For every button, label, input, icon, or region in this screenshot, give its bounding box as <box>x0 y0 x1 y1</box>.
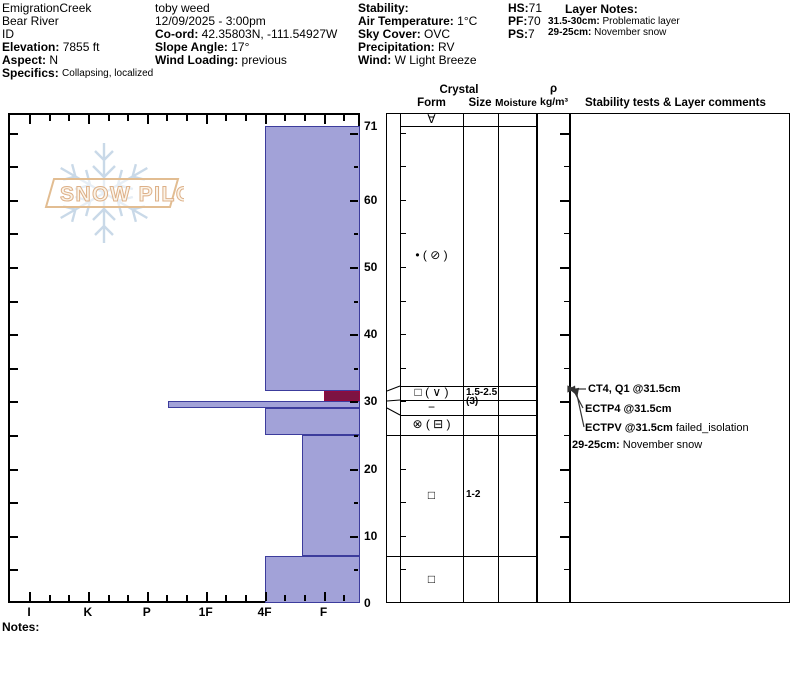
hardness-label-K: K <box>76 605 100 619</box>
snowpilot-logo: SNOW PILOT <box>24 135 184 255</box>
wind-loading: Wind Loading: previous <box>155 54 337 67</box>
depth-tick-left <box>10 334 18 336</box>
depth-tick-left <box>10 502 18 504</box>
ruler-tick <box>401 502 406 503</box>
depth-tick-right <box>350 267 358 269</box>
stability-test-2: ECTP4 @31.5cm <box>585 403 672 415</box>
form-symbol-71-31.5: • ( ⊘ ) <box>400 248 463 262</box>
hardness-tick-top <box>343 115 345 121</box>
form-symbol-31.5-30: □ ( ∨ ) <box>400 385 463 399</box>
ruler-tick <box>401 133 406 134</box>
depth-tick-right <box>354 166 358 168</box>
depth-tick-right <box>354 233 358 235</box>
notes-label: Notes: <box>2 620 39 634</box>
hardness-label-1F: 1F <box>194 605 218 619</box>
hardness-tick-top <box>127 115 129 121</box>
depth-tick-left <box>10 569 18 571</box>
density-tick <box>564 368 569 369</box>
header-col-weather: Stability: Air Temperature: 1°C Sky Cove… <box>358 2 477 67</box>
depth-tick-right <box>350 401 358 403</box>
hardness-tick-bottom <box>324 592 326 601</box>
hardness-tick-top <box>49 115 51 121</box>
stability-test-3: ECTPV @31.5cm failed_isolation <box>585 422 749 434</box>
ruler-tick <box>401 569 406 570</box>
layer-bar-29-25 <box>265 408 360 435</box>
density-tick <box>560 267 569 269</box>
form-symbol-7-0: □ <box>400 572 463 586</box>
ruler-tick <box>401 435 406 436</box>
hardness-label-I: I <box>17 605 41 619</box>
hardness-tick-bottom <box>304 595 306 601</box>
depth-tick-right <box>350 133 358 135</box>
ps-value: PS:7 <box>508 28 542 41</box>
layer-note-1: 31.5-30cm: Problematic layer <box>548 16 680 27</box>
mountain-range: Bear River <box>2 15 153 28</box>
hardness-tick-top <box>304 115 306 121</box>
depth-tick-right <box>354 502 358 504</box>
row-line-25 <box>386 435 537 436</box>
ruler-tick <box>401 166 406 167</box>
ruler-tick <box>401 536 406 537</box>
layer-note-2: 29-25cm: November snow <box>548 27 666 38</box>
header-col-observation: toby weed 12/09/2025 - 3:00pm Co-ord: 42… <box>155 2 337 67</box>
hardness-tick-bottom <box>186 595 188 601</box>
density-tick <box>560 401 569 403</box>
stability-header: Stability tests & Layer comments <box>585 97 766 109</box>
hardness-tick-bottom <box>245 595 247 601</box>
hardness-label-P: P <box>135 605 159 619</box>
depth-tick-left <box>10 166 18 168</box>
ruler-tick <box>401 267 406 268</box>
density-column-box <box>537 113 570 603</box>
density-tick <box>564 569 569 570</box>
hardness-tick-top <box>284 115 286 121</box>
hardness-tick-top <box>324 115 326 124</box>
depth-tick-left <box>10 536 18 538</box>
moisture-header: Moisture <box>491 98 541 109</box>
hardness-tick-bottom <box>166 595 168 601</box>
layer-bar-25-7 <box>302 435 360 556</box>
hardness-tick-top <box>265 115 267 124</box>
layer-comment: 29-25cm: November snow <box>572 439 702 451</box>
stability-test-suffix: failed_isolation <box>673 422 749 434</box>
density-tick <box>560 133 569 135</box>
density-tick <box>564 233 569 234</box>
ruler-tick <box>401 368 406 369</box>
depth-label-50: 50 <box>364 260 386 274</box>
hardness-tick-top <box>88 115 90 124</box>
header-col-snowpack: HS:71 PF:70 PS:7 <box>508 2 542 41</box>
ruler-tick <box>401 469 406 470</box>
density-tick <box>564 301 569 302</box>
hardness-label-4F: 4F <box>253 605 277 619</box>
form-header: Form <box>400 97 463 109</box>
form-symbol-30-29: − <box>400 400 463 414</box>
depth-tick-right <box>354 569 358 571</box>
density-tick <box>560 536 569 538</box>
hardness-tick-bottom <box>147 592 149 601</box>
density-tick <box>560 200 569 202</box>
depth-tick-right <box>350 536 358 538</box>
depth-tick-left <box>10 435 18 437</box>
depth-tick-left <box>10 401 18 403</box>
depth-tick-right <box>354 301 358 303</box>
size-moisture-divider <box>498 113 499 603</box>
row-line-29 <box>400 415 537 416</box>
hardness-tick-top <box>186 115 188 121</box>
size-value-25-7: 1-2 <box>466 489 480 500</box>
layer-comment-text: November snow <box>620 439 703 451</box>
hardness-tick-top <box>225 115 227 121</box>
density-tick <box>560 469 569 471</box>
depth-label-40: 40 <box>364 327 386 341</box>
hardness-tick-bottom <box>265 592 267 601</box>
stability-test-text: ECTPV @31.5cm <box>585 422 673 434</box>
form-symbol-29-25: ⊗ ( ⊟ ) <box>400 417 463 431</box>
specifics: Specifics: Collapsing, localized <box>2 67 153 80</box>
ruler-tick <box>401 200 406 201</box>
hardness-tick-top <box>166 115 168 121</box>
row-line-surface <box>400 126 537 127</box>
hardness-tick-bottom <box>108 595 110 601</box>
layer-bar-71-31.5 <box>265 126 360 391</box>
layer-bar-7-0 <box>265 556 360 603</box>
ruler-tick <box>401 401 406 402</box>
hardness-tick-bottom <box>29 592 31 601</box>
stability-test-1: CT4, Q1 @31.5cm <box>588 383 681 395</box>
layer-bar-30-29 <box>168 401 360 408</box>
density-header: ρ <box>537 83 570 95</box>
depth-tick-right <box>350 200 358 202</box>
hardness-tick-bottom <box>206 592 208 601</box>
row-line-7 <box>386 556 537 557</box>
crystal-table-box <box>386 113 537 603</box>
stability-box <box>570 113 790 603</box>
hardness-tick-top <box>206 115 208 124</box>
form-size-divider <box>463 113 464 603</box>
depth-label-60: 60 <box>364 193 386 207</box>
hardness-tick-bottom <box>88 592 90 601</box>
stability-test-text: CT4, Q1 @31.5cm <box>588 383 681 395</box>
depth-tick-right <box>350 334 358 336</box>
hardness-label-F: F <box>312 605 336 619</box>
density-units: kg/m³ <box>535 96 573 108</box>
depth-tick-left <box>10 267 18 269</box>
depth-tick-left <box>10 200 18 202</box>
depth-label-10: 10 <box>364 529 386 543</box>
depth-label-30: 30 <box>364 394 386 408</box>
hardness-tick-bottom <box>127 595 129 601</box>
table-depth-ruler <box>400 113 401 603</box>
depth-tick-left <box>10 368 18 370</box>
hardness-profile-chart: SNOW PILOT <box>8 113 360 603</box>
hardness-tick-bottom <box>225 595 227 601</box>
depth-tick-left <box>10 469 18 471</box>
crystal-header: Crystal <box>420 84 498 96</box>
hardness-tick-top <box>68 115 70 121</box>
hardness-tick-top <box>147 115 149 124</box>
hardness-tick-bottom <box>68 595 70 601</box>
depth-label-20: 20 <box>364 462 386 476</box>
header-col-location: EmigrationCreek Bear River ID Elevation:… <box>2 2 153 80</box>
layer-comment-range: 29-25cm: <box>572 439 620 451</box>
density-tick <box>564 435 569 436</box>
hardness-tick-bottom <box>284 595 286 601</box>
density-tick <box>564 166 569 167</box>
size-value2-31.5-30: (3) <box>466 396 478 407</box>
ruler-tick <box>401 233 406 234</box>
hardness-tick-top <box>108 115 110 121</box>
form-symbol-25-7: □ <box>400 488 463 502</box>
form-symbol-surface: ∀ <box>400 112 463 126</box>
stability-test-text: ECTP4 @31.5cm <box>585 403 672 415</box>
density-tick <box>560 334 569 336</box>
layer-bar-31.5-30 <box>324 391 361 401</box>
depth-tick-left <box>10 233 18 235</box>
depth-label-71: 71 <box>364 119 386 133</box>
depth-tick-right <box>354 368 358 370</box>
ruler-tick <box>401 301 406 302</box>
logo-text: SNOW PILOT <box>60 183 184 206</box>
depth-label-0: 0 <box>364 596 386 610</box>
wind: Wind: W Light Breeze <box>358 54 477 67</box>
depth-tick-left <box>10 301 18 303</box>
hardness-tick-bottom <box>49 595 51 601</box>
depth-tick-right <box>350 469 358 471</box>
snowpilot-profile-page: EmigrationCreek Bear River ID Elevation:… <box>0 0 800 676</box>
density-tick <box>564 502 569 503</box>
hardness-tick-top <box>245 115 247 121</box>
depth-tick-right <box>354 435 358 437</box>
depth-tick-left <box>10 133 18 135</box>
ruler-tick <box>401 334 406 335</box>
hardness-tick-top <box>29 115 31 124</box>
hardness-tick-bottom <box>343 595 345 601</box>
layer-notes-title: Layer Notes: <box>565 2 638 16</box>
